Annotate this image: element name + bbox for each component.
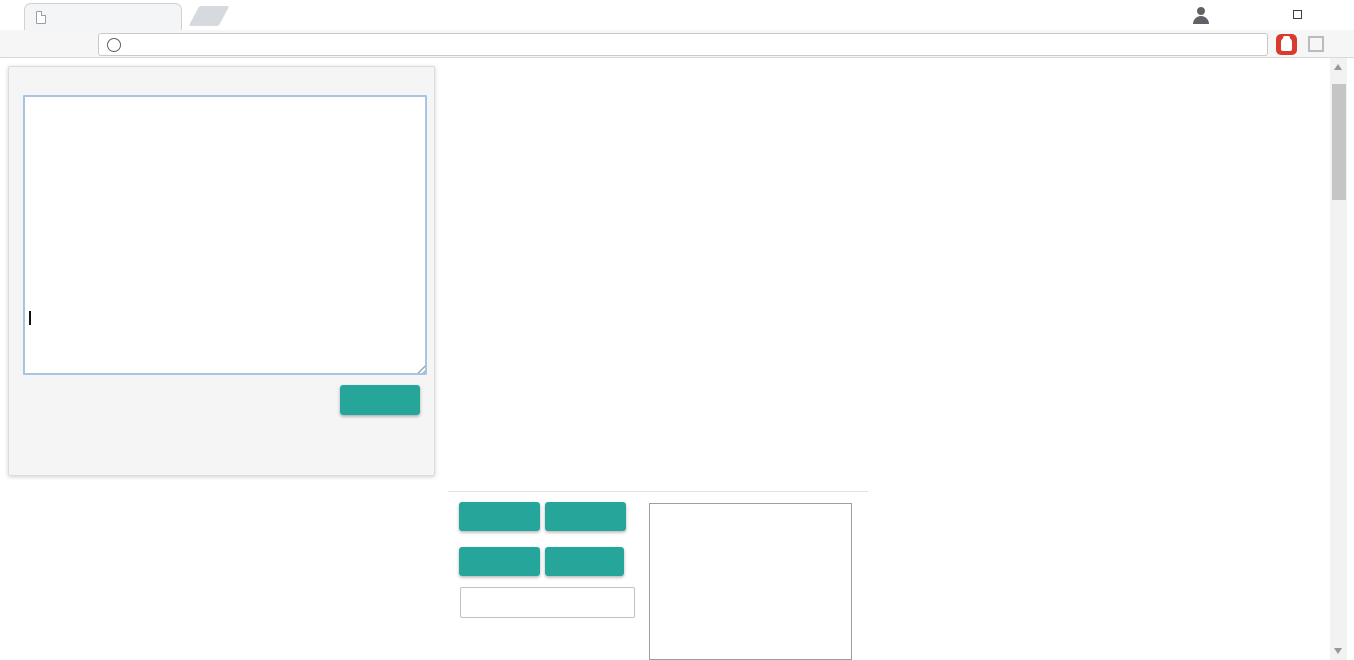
page-content [0,58,1354,660]
exportmap-button[interactable] [545,502,626,531]
page-favicon [36,11,46,24]
scroll-down-icon[interactable] [1334,648,1342,654]
browser-titlebar [0,0,1354,30]
scroll-up-icon[interactable] [1334,64,1342,70]
clearmap-button[interactable] [459,502,540,531]
copymap-button[interactable] [340,385,420,415]
address-bar[interactable] [98,33,1268,56]
window-restore-button[interactable] [1280,0,1314,28]
write-button[interactable] [545,547,624,576]
page-scrollbar[interactable] [1330,58,1347,660]
output-box [649,503,852,660]
matrix-panel [8,66,435,476]
scrollbar-thumb[interactable] [1332,84,1346,200]
browser-toolbar [0,30,1354,58]
window-minimize-button[interactable] [1236,0,1270,28]
divider-line [448,491,868,492]
profile-avatar-icon[interactable] [1191,5,1211,25]
text-caret [29,311,31,325]
matrix-textarea[interactable] [23,95,427,375]
extension-hand-icon[interactable] [1276,34,1297,55]
page-info-icon[interactable] [107,38,121,52]
filename-input[interactable] [460,587,635,618]
tileset-palette-canvas[interactable] [896,66,1312,660]
read-button[interactable] [459,547,540,576]
window-close-button[interactable] [1324,0,1354,28]
extension-checkbox-icon[interactable] [1308,36,1324,52]
tab-title [53,10,159,26]
map-canvas[interactable] [448,66,864,482]
browser-tab[interactable] [24,3,182,30]
new-tab-button[interactable] [189,6,230,26]
